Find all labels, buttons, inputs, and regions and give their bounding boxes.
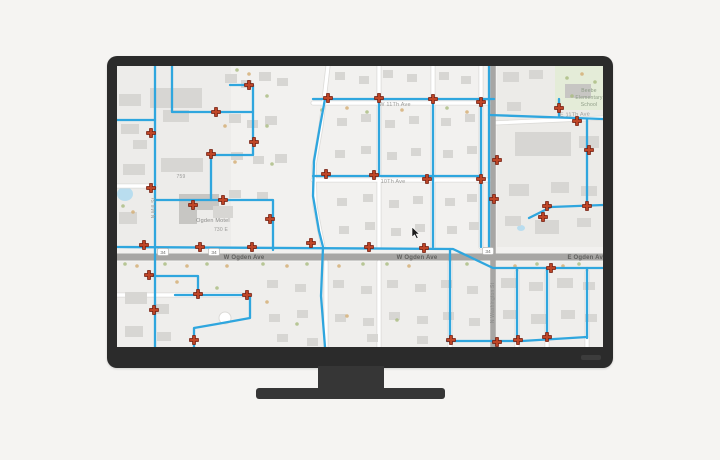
building — [577, 218, 591, 227]
building — [119, 212, 137, 224]
tree-dot — [361, 262, 365, 266]
building — [467, 286, 478, 294]
tree-dot — [123, 262, 127, 266]
shrub-dot — [185, 264, 189, 268]
building — [409, 116, 419, 124]
route-shield: 34 — [158, 249, 169, 256]
shrub-dot — [223, 124, 227, 128]
shrub-dot — [233, 160, 237, 164]
hydrant-plus-icon — [250, 138, 259, 147]
monitor: 343434W 11Th Ave10Th AveE 11Th AveW Ogde… — [107, 56, 613, 368]
shrub-dot — [225, 264, 229, 268]
building — [447, 226, 457, 234]
shrub-dot — [135, 264, 139, 268]
shrub-dot — [465, 110, 469, 114]
map-label: W Ogden Ave — [224, 255, 265, 261]
map-label: E 11Th Ave — [560, 111, 590, 118]
building — [515, 132, 571, 156]
shrub-dot — [337, 264, 341, 268]
building — [339, 226, 349, 234]
building — [441, 118, 451, 126]
building — [461, 76, 471, 84]
building — [529, 282, 543, 291]
building — [415, 284, 426, 292]
hydrant-marker[interactable] — [365, 243, 374, 252]
map-label: 759 — [177, 174, 186, 180]
building — [411, 148, 421, 156]
tree-dot — [465, 262, 469, 266]
shrub-dot — [580, 72, 584, 76]
map-screen[interactable]: 343434W 11Th Ave10Th AveE 11Th AveW Ogde… — [117, 66, 603, 347]
building — [150, 88, 202, 108]
building — [213, 206, 233, 218]
building — [125, 292, 147, 304]
map-canvas[interactable]: 343434W 11Th Ave10Th AveE 11Th AveW Ogde… — [117, 66, 603, 347]
building — [469, 222, 479, 230]
tree-dot — [261, 262, 265, 266]
building — [413, 196, 423, 204]
building — [225, 74, 237, 83]
building — [133, 140, 147, 149]
building — [253, 156, 264, 164]
shrub-dot — [400, 108, 404, 112]
tree-dot — [295, 322, 299, 326]
tree-dot — [265, 94, 269, 98]
building — [439, 72, 449, 80]
building — [389, 200, 399, 208]
building — [501, 278, 517, 288]
tree-dot — [445, 106, 449, 110]
map-label: 730 E — [214, 227, 229, 233]
hydrant-marker[interactable] — [420, 244, 429, 253]
route-shield: 34 — [209, 249, 220, 256]
building — [505, 216, 521, 226]
hydrant-plus-icon — [365, 243, 374, 252]
building — [359, 76, 369, 84]
shrub-dot — [345, 106, 349, 110]
tree-dot — [265, 124, 269, 128]
shrub-dot — [175, 280, 179, 284]
building — [389, 312, 400, 320]
building — [581, 186, 597, 196]
map-label: W Ogden Ave — [397, 255, 438, 261]
building — [583, 282, 595, 290]
map-label: E Ogden Ave — [567, 255, 603, 261]
building — [363, 194, 373, 202]
map-label: School — [581, 102, 598, 108]
building — [297, 310, 308, 318]
tree-dot — [215, 286, 219, 290]
map-label: Ogden Motel — [196, 218, 230, 224]
building — [363, 318, 374, 326]
building — [561, 310, 575, 319]
building — [123, 164, 145, 175]
tree-dot — [385, 262, 389, 266]
building — [335, 150, 345, 158]
shrub-dot — [131, 210, 135, 214]
page-background: 343434W 11Th Ave10Th AveE 11Th AveW Ogde… — [0, 0, 720, 460]
route-shield: 34 — [483, 248, 494, 255]
building — [229, 190, 241, 198]
building — [503, 310, 517, 319]
map-label: 10Th Ave — [381, 179, 406, 185]
building — [385, 120, 395, 128]
building — [277, 78, 288, 86]
building — [467, 194, 477, 202]
hydrant-marker[interactable] — [248, 243, 257, 252]
route-shield-number: 34 — [211, 250, 217, 256]
building — [333, 280, 344, 288]
tree-dot — [395, 318, 399, 322]
monitor-stand-base — [256, 388, 445, 399]
tree-dot — [305, 262, 309, 266]
shrub-dot — [285, 264, 289, 268]
building — [361, 286, 372, 294]
tree-dot — [121, 204, 125, 208]
building — [551, 182, 569, 193]
building — [361, 114, 371, 122]
building — [509, 184, 529, 196]
route-shield-number: 34 — [485, 249, 491, 255]
building — [259, 72, 271, 81]
shrub-dot — [345, 314, 349, 318]
building — [337, 118, 347, 126]
tree-dot — [577, 262, 581, 266]
building — [443, 312, 454, 320]
building — [557, 278, 573, 288]
building — [179, 210, 197, 224]
building — [503, 72, 519, 82]
building — [407, 74, 417, 82]
tree-dot — [570, 94, 574, 98]
shrub-dot — [407, 264, 411, 268]
tree-dot — [235, 68, 239, 72]
building — [367, 334, 378, 342]
building — [365, 222, 375, 230]
building — [161, 158, 203, 172]
building — [277, 334, 288, 342]
building — [119, 94, 141, 106]
tree-dot — [535, 262, 539, 266]
pond — [117, 187, 133, 201]
building — [295, 284, 306, 292]
building — [445, 198, 455, 206]
hydrant-plus-icon — [248, 243, 257, 252]
tree-dot — [205, 262, 209, 266]
building — [257, 192, 268, 200]
hydrant-plus-icon — [420, 244, 429, 253]
building — [307, 338, 318, 346]
tree-dot — [365, 110, 369, 114]
building — [265, 116, 277, 125]
shrub-dot — [247, 72, 251, 76]
map-label: N Mill St — [151, 197, 157, 218]
map-label: W 11Th Ave — [379, 102, 410, 108]
building — [529, 70, 543, 79]
building — [417, 316, 428, 324]
building — [443, 150, 453, 158]
hydrant-marker[interactable] — [307, 239, 316, 248]
tree-dot — [270, 162, 274, 166]
tree-dot — [565, 76, 569, 80]
building — [387, 280, 398, 288]
map-label: N Washington St — [490, 282, 496, 323]
monitor-brand-indicator — [581, 355, 601, 360]
building — [267, 280, 278, 288]
building — [469, 318, 480, 326]
hydrant-plus-icon — [307, 239, 316, 248]
building — [335, 72, 345, 80]
building — [387, 152, 397, 160]
building — [391, 228, 401, 236]
tree-dot — [163, 262, 167, 266]
building — [275, 154, 287, 163]
building — [337, 198, 347, 206]
building — [415, 224, 425, 232]
monitor-stand-neck — [318, 366, 384, 389]
building — [417, 336, 428, 344]
building — [335, 314, 346, 322]
building — [531, 314, 547, 324]
hydrant-marker[interactable] — [250, 138, 259, 147]
building — [535, 220, 559, 234]
route-shield-number: 34 — [160, 250, 166, 256]
building — [467, 146, 477, 154]
building — [507, 102, 521, 111]
city-block — [117, 262, 603, 347]
building — [383, 70, 393, 78]
building — [361, 146, 371, 154]
building — [229, 114, 241, 123]
shrub-dot — [265, 300, 269, 304]
building — [125, 326, 143, 337]
building — [465, 114, 475, 122]
map-label: Elementary — [575, 95, 603, 101]
building — [157, 332, 171, 341]
building — [121, 124, 139, 134]
tree-dot — [593, 80, 597, 84]
map-label: Beebe — [581, 88, 596, 94]
building — [269, 314, 280, 322]
